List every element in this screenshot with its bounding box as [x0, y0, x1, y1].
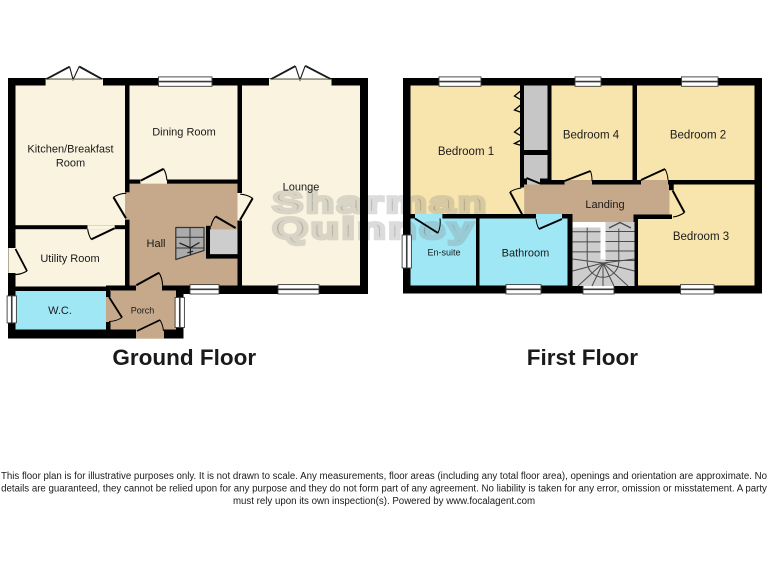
svg-text:Bedroom 4: Bedroom 4 — [563, 129, 620, 141]
svg-text:Bedroom 3: Bedroom 3 — [673, 231, 729, 243]
svg-text:Room: Room — [56, 158, 85, 170]
svg-text:Dining Room: Dining Room — [152, 127, 216, 139]
svg-text:W.C.: W.C. — [48, 305, 72, 317]
svg-text:En-suite: En-suite — [427, 248, 460, 258]
svg-text:Utility Room: Utility Room — [40, 253, 99, 265]
svg-text:Bedroom 1: Bedroom 1 — [438, 146, 494, 158]
svg-text:Kitchen/Breakfast: Kitchen/Breakfast — [27, 143, 113, 155]
svg-text:must rely upon its own inspect: must rely upon its own inspection(s). Po… — [233, 496, 535, 507]
svg-text:Porch: Porch — [131, 306, 155, 316]
svg-text:Landing: Landing — [585, 199, 624, 211]
svg-text:details are guaranteed, they c: details are guaranteed, they cannot be r… — [1, 483, 767, 494]
svg-text:First Floor: First Floor — [527, 345, 638, 370]
svg-text:Bedroom 2: Bedroom 2 — [670, 129, 726, 141]
svg-text:Bathroom: Bathroom — [502, 248, 550, 260]
svg-text:Ground Floor: Ground Floor — [112, 345, 256, 370]
svg-text:Hall: Hall — [147, 238, 166, 250]
svg-text:This floor plan is for illustr: This floor plan is for illustrative purp… — [1, 471, 767, 482]
svg-text:Lounge: Lounge — [283, 182, 320, 194]
